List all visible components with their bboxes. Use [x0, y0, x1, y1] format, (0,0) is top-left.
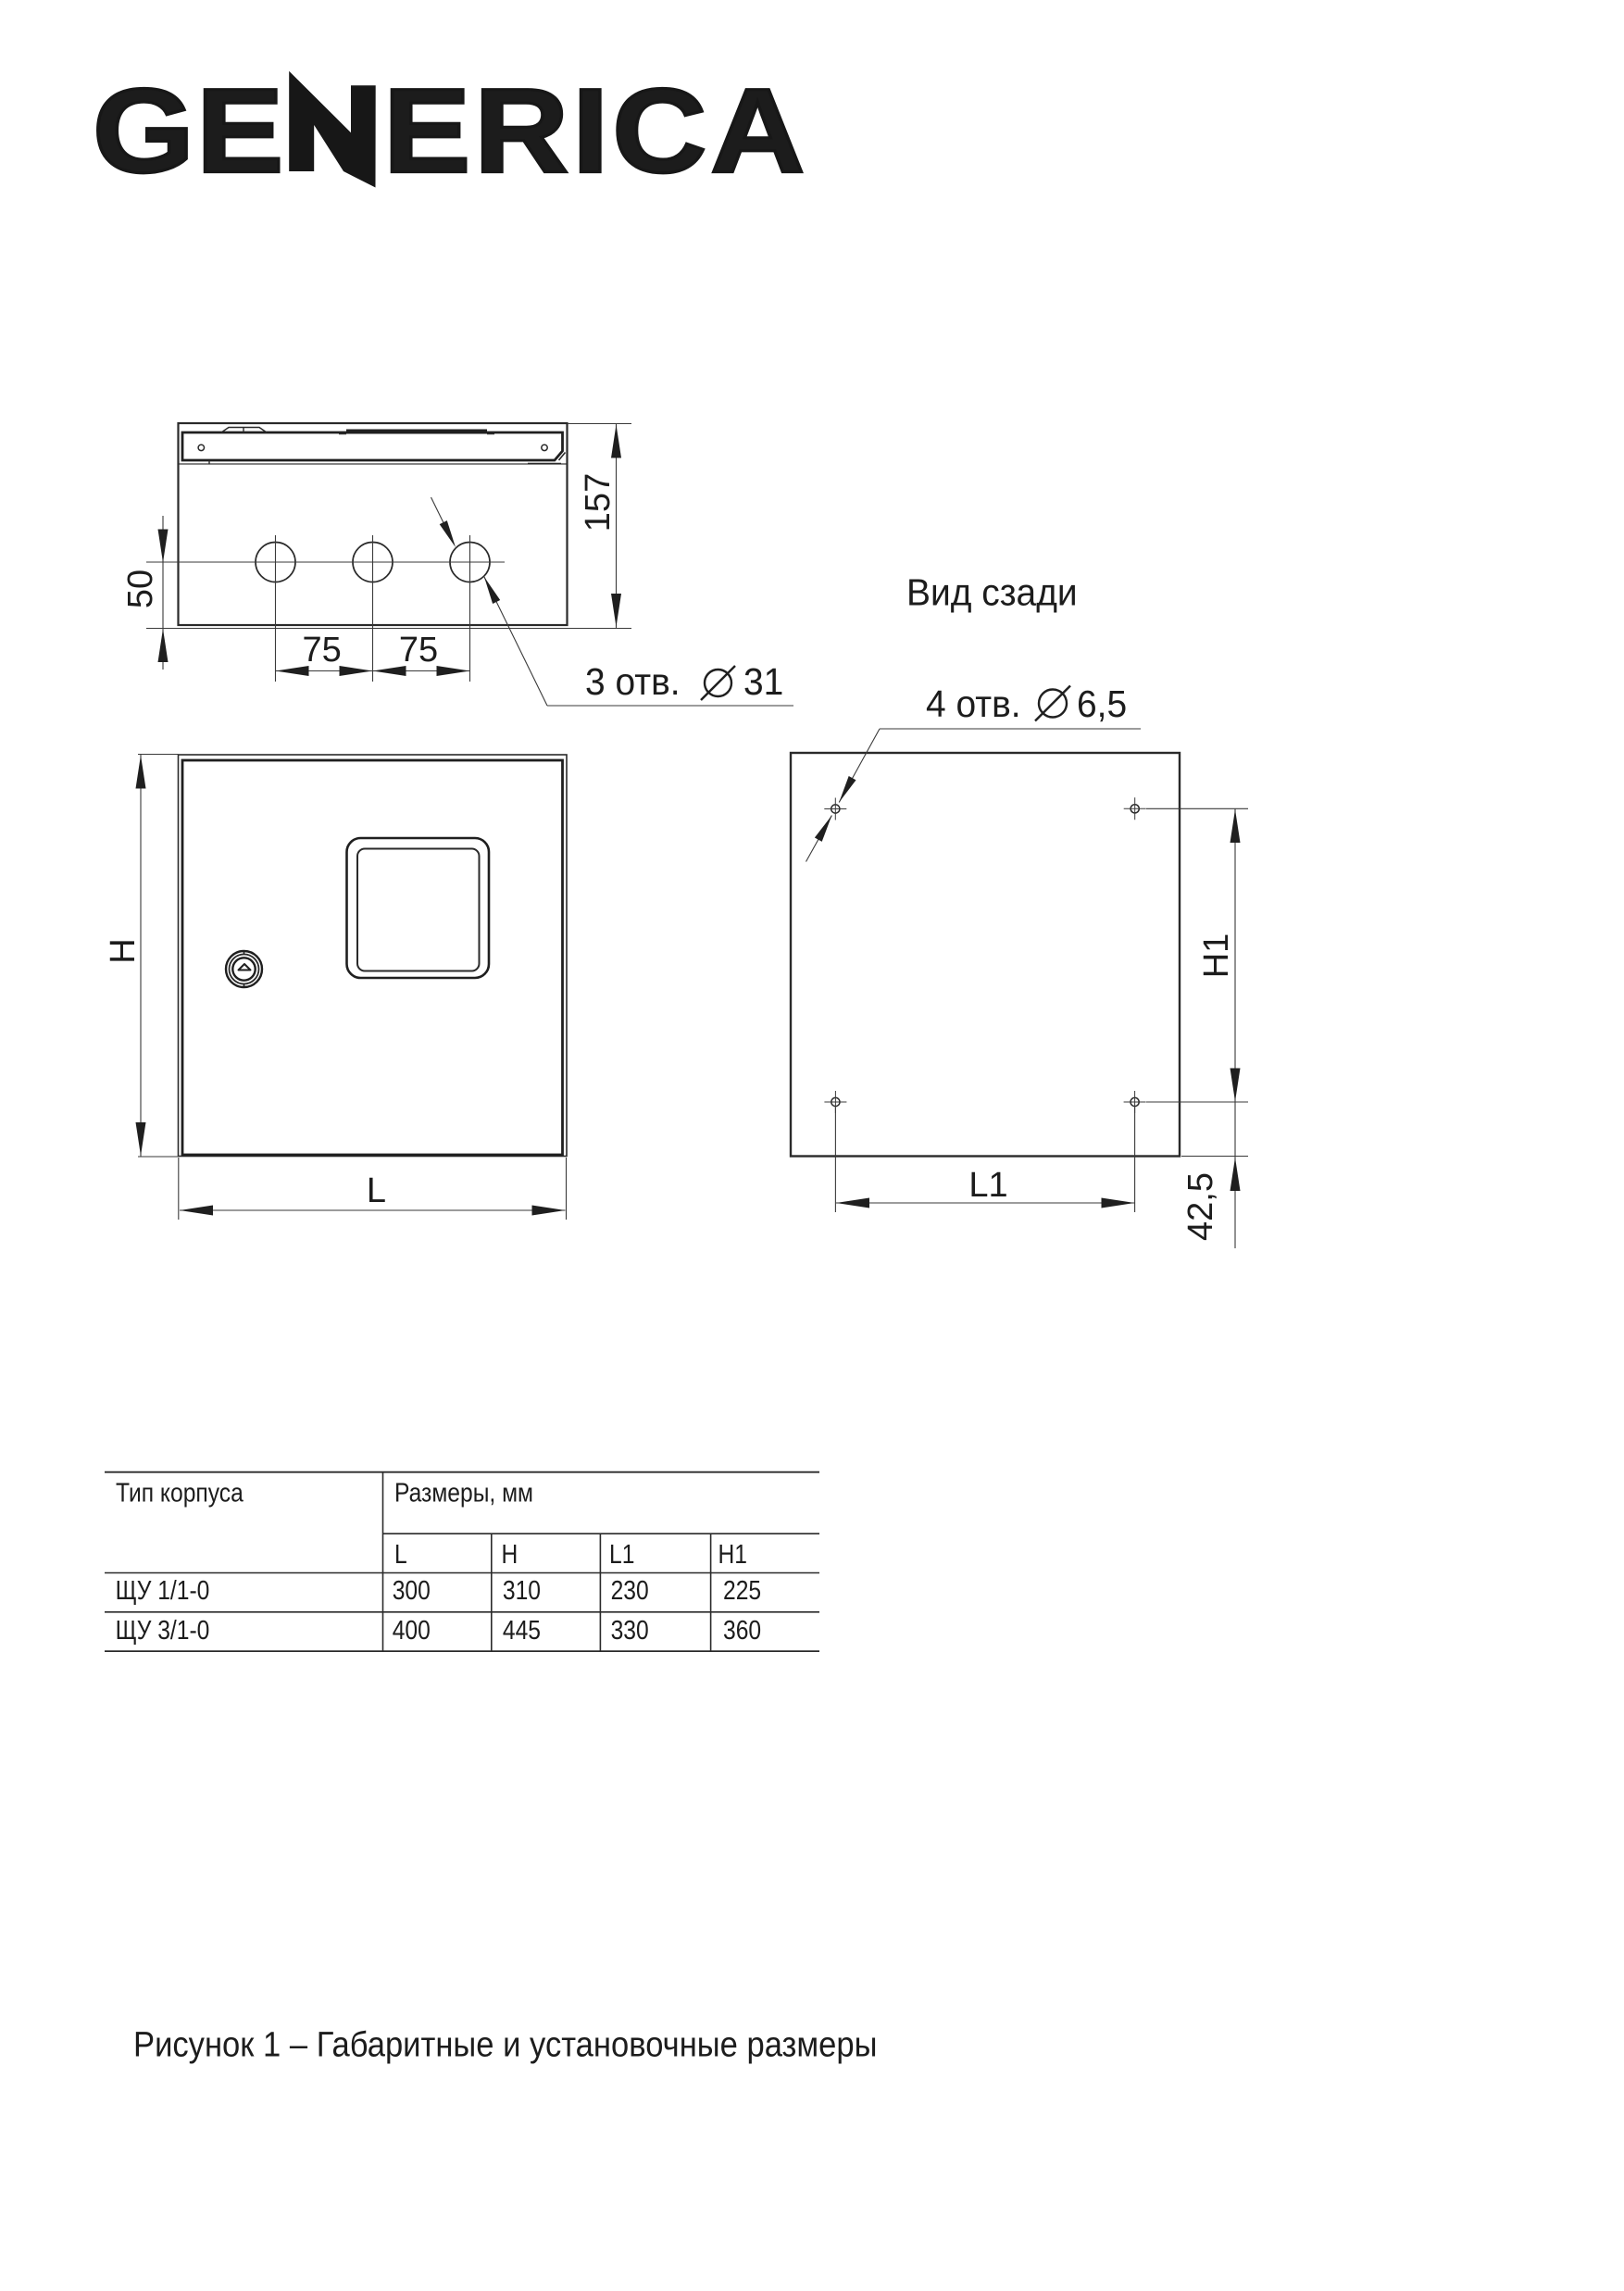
svg-text:75: 75	[303, 631, 342, 670]
svg-text:H: H	[104, 938, 143, 963]
svg-text:Вид сзади: Вид сзади	[906, 572, 1078, 614]
svg-text:L1: L1	[609, 1539, 634, 1569]
svg-text:ЩУ 3/1-0: ЩУ 3/1-0	[116, 1615, 210, 1645]
svg-text:400: 400	[393, 1615, 431, 1645]
svg-text:L: L	[394, 1539, 407, 1569]
svg-text:Рисунок 1 – Габаритные и устан: Рисунок 1 – Габаритные и установочные ра…	[133, 2024, 878, 2064]
svg-text:Размеры, мм: Размеры, мм	[394, 1478, 533, 1508]
svg-text:42,5: 42,5	[1181, 1172, 1220, 1241]
svg-text:4 отв.: 4 отв.	[926, 683, 1021, 725]
svg-text:H1: H1	[1197, 933, 1236, 979]
svg-text:310: 310	[503, 1575, 541, 1605]
svg-text:ЩУ 1/1-0: ЩУ 1/1-0	[116, 1575, 210, 1605]
svg-text:31: 31	[743, 661, 783, 703]
svg-text:GE: GE	[93, 64, 285, 197]
svg-text:330: 330	[611, 1615, 649, 1645]
svg-text:360: 360	[723, 1615, 761, 1645]
svg-text:445: 445	[503, 1615, 541, 1645]
svg-text:L: L	[367, 1171, 386, 1210]
svg-text:3 отв.: 3 отв.	[585, 661, 681, 703]
svg-text:Тип корпуса: Тип корпуса	[116, 1478, 244, 1508]
svg-text:H: H	[502, 1539, 518, 1569]
svg-text:300: 300	[393, 1575, 431, 1605]
svg-text:H1: H1	[718, 1539, 748, 1569]
svg-text:225: 225	[723, 1575, 761, 1605]
svg-text:L1: L1	[968, 1166, 1007, 1205]
svg-text:50: 50	[121, 570, 160, 608]
svg-text:6,5: 6,5	[1077, 683, 1127, 725]
svg-text:230: 230	[611, 1575, 649, 1605]
svg-text:157: 157	[579, 473, 618, 532]
svg-text:75: 75	[399, 631, 438, 670]
svg-text:ERICA: ERICA	[383, 64, 808, 197]
